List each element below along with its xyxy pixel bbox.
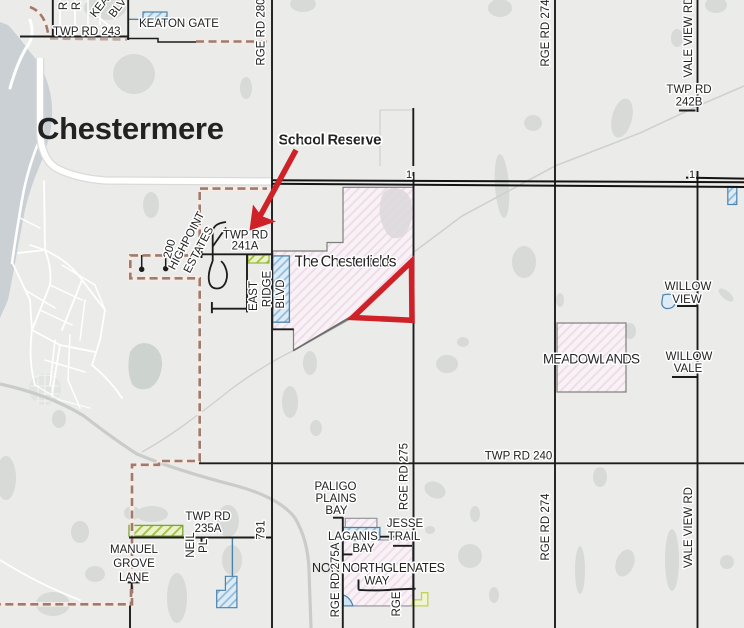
- svg-text:791: 791: [256, 520, 268, 539]
- svg-text:TWP RD: TWP RD: [666, 84, 711, 96]
- svg-text:WILLOW: WILLOW: [666, 351, 713, 363]
- svg-text:R: R: [71, 2, 83, 10]
- svg-text:EAST: EAST: [248, 281, 260, 311]
- svg-text:WAY: WAY: [365, 576, 390, 588]
- svg-text:RIDGE: RIDGE: [262, 270, 274, 307]
- svg-text:BLVD: BLVD: [275, 279, 287, 308]
- svg-text:RGE RD 274: RGE RD 274: [540, 0, 552, 67]
- svg-text:RGE RD 275A: RGE RD 275A: [330, 542, 342, 617]
- svg-text:1: 1: [689, 169, 695, 181]
- svg-text:VALE VIEW RD: VALE VIEW RD: [683, 487, 695, 568]
- svg-text:TRAIL: TRAIL: [388, 531, 421, 543]
- svg-text:JESSE: JESSE: [387, 518, 424, 530]
- svg-text:LAGANIS: LAGANIS: [328, 531, 378, 543]
- svg-text:BAY: BAY: [325, 505, 347, 517]
- svg-text:WILLOW: WILLOW: [665, 281, 712, 293]
- svg-text:BAY: BAY: [352, 543, 374, 555]
- svg-text:PALIGO: PALIGO: [315, 481, 357, 493]
- svg-text:241A: 241A: [232, 241, 259, 253]
- svg-text:PLAINS: PLAINS: [316, 493, 357, 505]
- svg-text:School Reserve: School Reserve: [279, 132, 382, 149]
- svg-text:RGE RD 274: RGE RD 274: [540, 493, 552, 561]
- svg-text:Chestermere: Chestermere: [37, 111, 224, 146]
- svg-text:LANE: LANE: [119, 572, 149, 584]
- svg-text:GROVE: GROVE: [113, 558, 155, 570]
- svg-text:RGE RD 275: RGE RD 275: [399, 443, 411, 510]
- svg-text:TWP RD: TWP RD: [185, 511, 230, 523]
- svg-text:VIEW: VIEW: [672, 294, 702, 306]
- svg-text:R: R: [58, 2, 70, 10]
- svg-text:TWP RD 240: TWP RD 240: [485, 451, 553, 463]
- svg-text:1: 1: [406, 169, 412, 181]
- svg-text:KEATON GATE: KEATON GATE: [139, 18, 219, 30]
- svg-text:VALE: VALE: [674, 363, 703, 375]
- svg-text:RGE RD 280: RGE RD 280: [256, 0, 268, 66]
- svg-text:MANUEL: MANUEL: [110, 544, 159, 556]
- svg-text:NORTHGLENATES: NORTHGLENATES: [342, 561, 445, 575]
- svg-text:TWP RD 243: TWP RD 243: [53, 26, 121, 38]
- svg-text:242B: 242B: [676, 97, 703, 109]
- svg-text:The Chesterfields: The Chesterfields: [295, 254, 397, 271]
- svg-text:MEADOWLANDS: MEADOWLANDS: [543, 352, 640, 367]
- svg-text:RGE: RGE: [391, 591, 403, 616]
- svg-text:235A: 235A: [195, 523, 222, 535]
- svg-text:VALE VIEW RD: VALE VIEW RD: [683, 0, 695, 77]
- svg-text:PL: PL: [198, 538, 210, 553]
- svg-text:NEIL: NEIL: [185, 532, 197, 558]
